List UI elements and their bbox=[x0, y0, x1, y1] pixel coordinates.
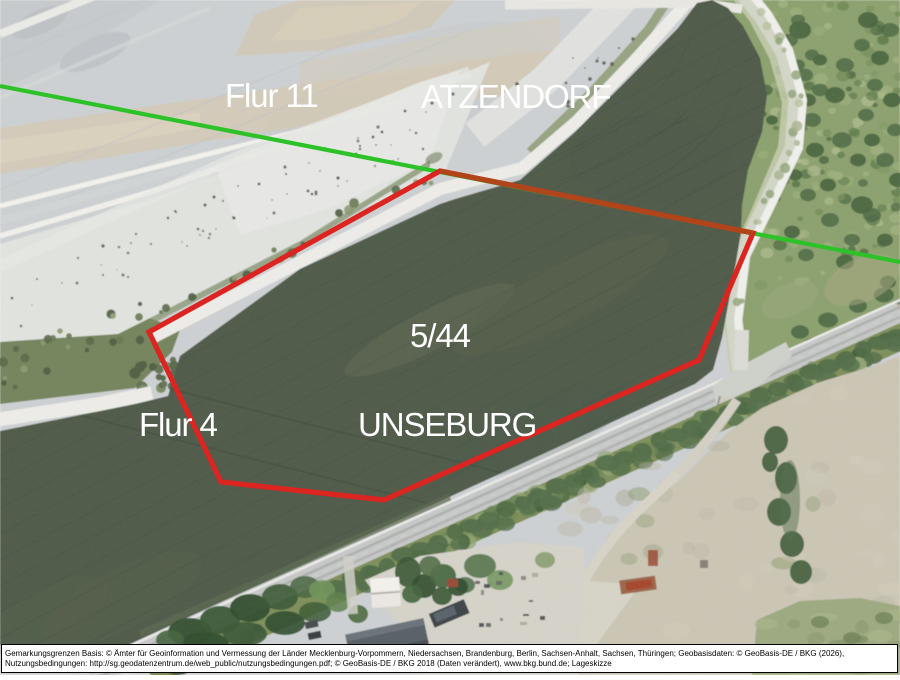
svg-text:Flur 4: Flur 4 bbox=[139, 406, 218, 443]
svg-text:Flur 11: Flur 11 bbox=[225, 77, 318, 114]
svg-text:UNSEBURG: UNSEBURG bbox=[358, 406, 536, 443]
svg-text:ATZENDORF: ATZENDORF bbox=[421, 78, 610, 115]
svg-text:5/44: 5/44 bbox=[410, 317, 471, 354]
